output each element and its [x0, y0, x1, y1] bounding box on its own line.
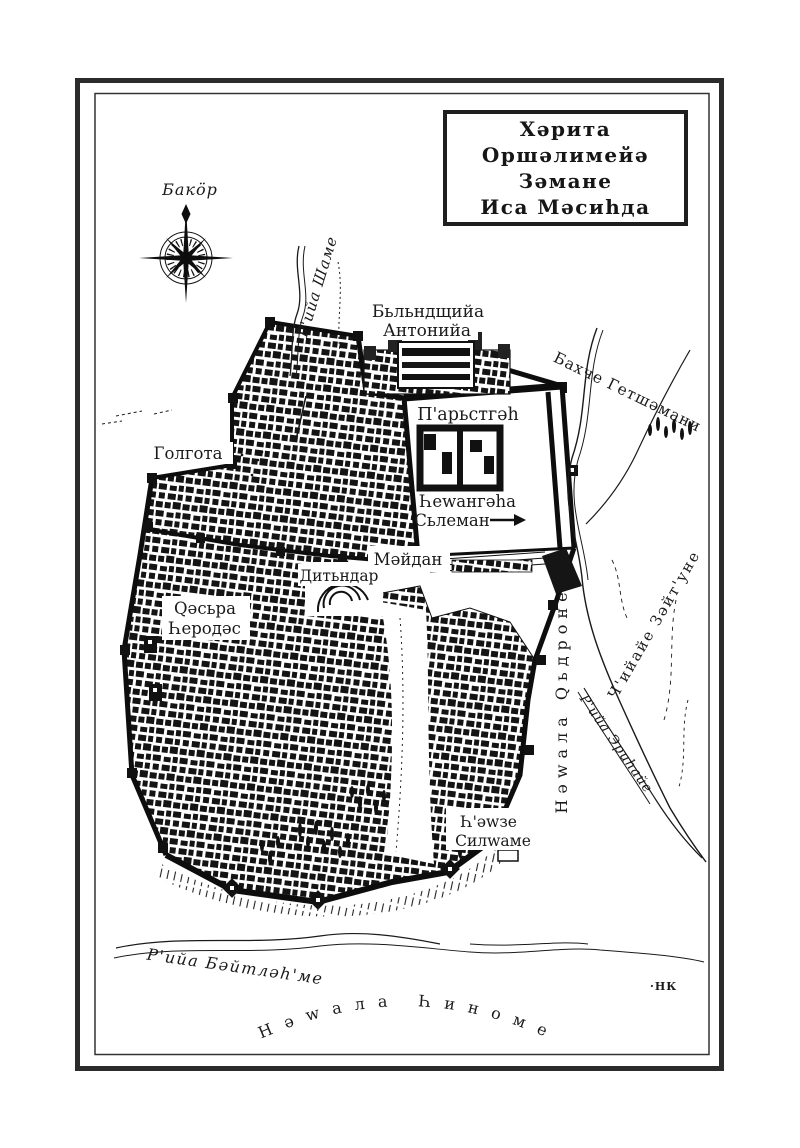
label-north: Бакӧр	[161, 180, 218, 199]
siloam-pool	[498, 850, 518, 861]
label-ditindar: Дитьндар	[300, 567, 379, 585]
label-herod-1: Qәсьра	[174, 599, 236, 618]
label-siloam-1: Һ'әwзе	[460, 813, 517, 831]
title-line-2: Оршәлимейә	[447, 142, 684, 168]
antonia-fortress	[364, 332, 510, 394]
label-mount-olives: Ч'ийайе Зәйт'уне	[604, 547, 704, 702]
compass-rose-icon	[139, 204, 233, 303]
title-line-1: Хәрита	[447, 116, 684, 142]
map-title-box: Хәрита Оршәлимейә Зәмане Иса Мәсиһда	[443, 110, 688, 226]
label-golgotha: Голгота	[154, 444, 223, 463]
label-temple: П'арьстгәһ	[417, 405, 519, 425]
label-gethsemane: Бахче Гетшәмани	[551, 348, 705, 435]
artist-signature: ·НК	[650, 980, 677, 993]
label-road-jericho: Р'ийа Эриһайе	[575, 691, 656, 797]
road-bethlehem-line	[116, 934, 440, 948]
label-antonia-2: Антонийа	[383, 321, 471, 341]
label-road-damascus: Р'ийа Шаме	[293, 234, 341, 340]
label-herod-2: Һеродәс	[168, 619, 241, 638]
label-kidron-valley: Нәwала Qьдроне	[552, 586, 571, 813]
label-maidan: Мәйдан	[374, 550, 443, 569]
label-solomon-2: Сьлеман	[414, 511, 490, 530]
title-line-4: Иса Мәсиһда	[447, 194, 684, 220]
label-road-bethlehem: Р'ийа Бәйтләһ'ме	[145, 945, 325, 989]
title-line-3: Зәмане	[447, 168, 684, 194]
label-antonia-1: Бьльндщийа	[372, 302, 484, 322]
label-solomon-1: Һеwангәһа	[419, 492, 516, 511]
label-siloam-2: Силwаме	[455, 832, 531, 850]
label-hinnom-valley: Нәwала Һиноме	[255, 991, 562, 1045]
temple-building	[420, 428, 500, 488]
